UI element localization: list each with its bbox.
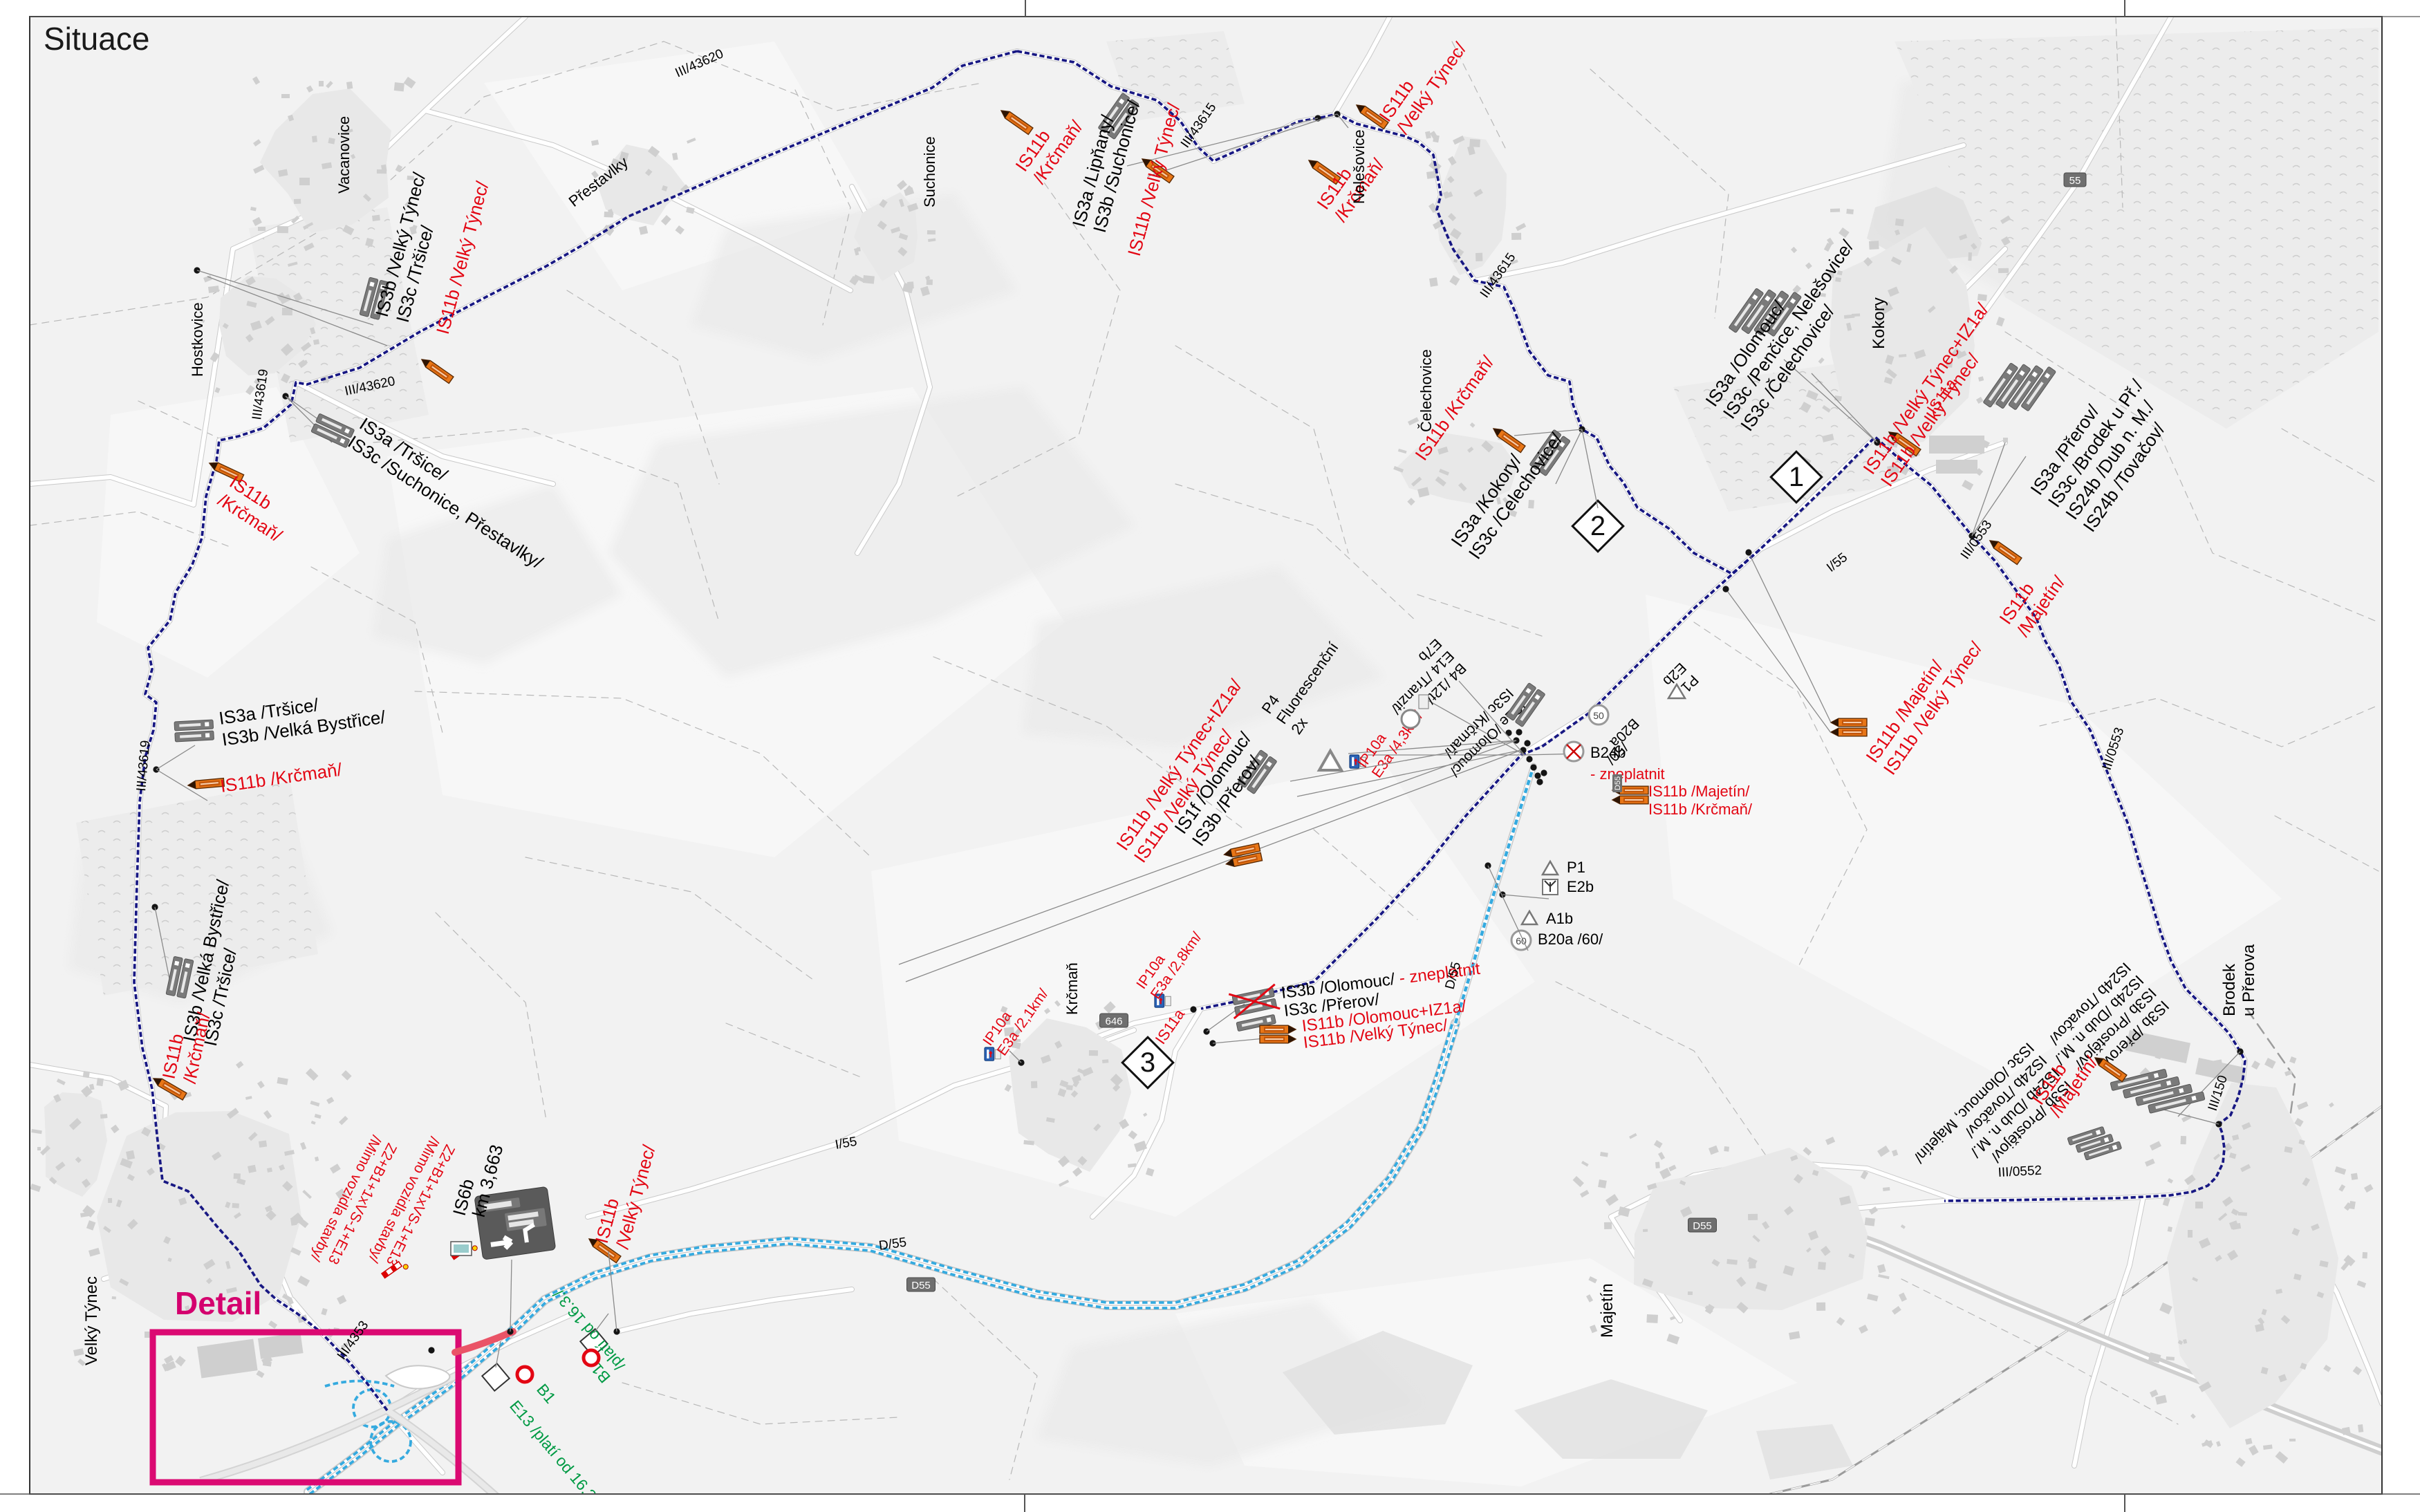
svg-text:Majetín: Majetín [1598, 1283, 1617, 1338]
svg-text:646: 646 [1105, 1016, 1122, 1027]
svg-text:Vacanovice: Vacanovice [335, 116, 353, 194]
svg-text:Hostkovice: Hostkovice [189, 302, 206, 377]
svg-text:B20a /60/: B20a /60/ [1538, 931, 1603, 948]
svg-text:D55: D55 [1693, 1220, 1712, 1232]
svg-text:50: 50 [1593, 710, 1604, 721]
svg-text:- zneplatnit: - zneplatnit [1590, 765, 1665, 783]
svg-text:Detail: Detail [175, 1285, 261, 1321]
svg-text:Suchonice: Suchonice [921, 136, 938, 207]
svg-text:D55: D55 [1614, 776, 1622, 790]
svg-text:55: 55 [2069, 175, 2081, 187]
svg-text:Nelešovice: Nelešovice [1350, 129, 1368, 204]
svg-text:Velký Týnec: Velký Týnec [82, 1276, 101, 1365]
svg-text:D55: D55 [911, 1280, 931, 1291]
svg-text:Krčmaň: Krčmaň [1063, 962, 1081, 1015]
svg-text:B24b: B24b [1590, 744, 1626, 761]
svg-text:1: 1 [1789, 462, 1804, 492]
svg-text:3: 3 [1140, 1047, 1155, 1078]
svg-text:IS11b /Majetín/: IS11b /Majetín/ [1648, 783, 1750, 800]
svg-text:III/0552: III/0552 [1998, 1164, 2042, 1180]
svg-text:IS11b /Krčmaň/: IS11b /Krčmaň/ [1648, 801, 1753, 818]
svg-text:E2b: E2b [1567, 878, 1594, 895]
svg-text:Čelechovice: Čelechovice [1417, 349, 1435, 432]
svg-text:Kokory: Kokory [1870, 297, 1888, 349]
svg-text:2: 2 [1590, 511, 1605, 541]
svg-text:A1b: A1b [1546, 910, 1573, 927]
svg-text:Situace: Situace [44, 21, 149, 57]
svg-text:P1: P1 [1567, 859, 1585, 876]
